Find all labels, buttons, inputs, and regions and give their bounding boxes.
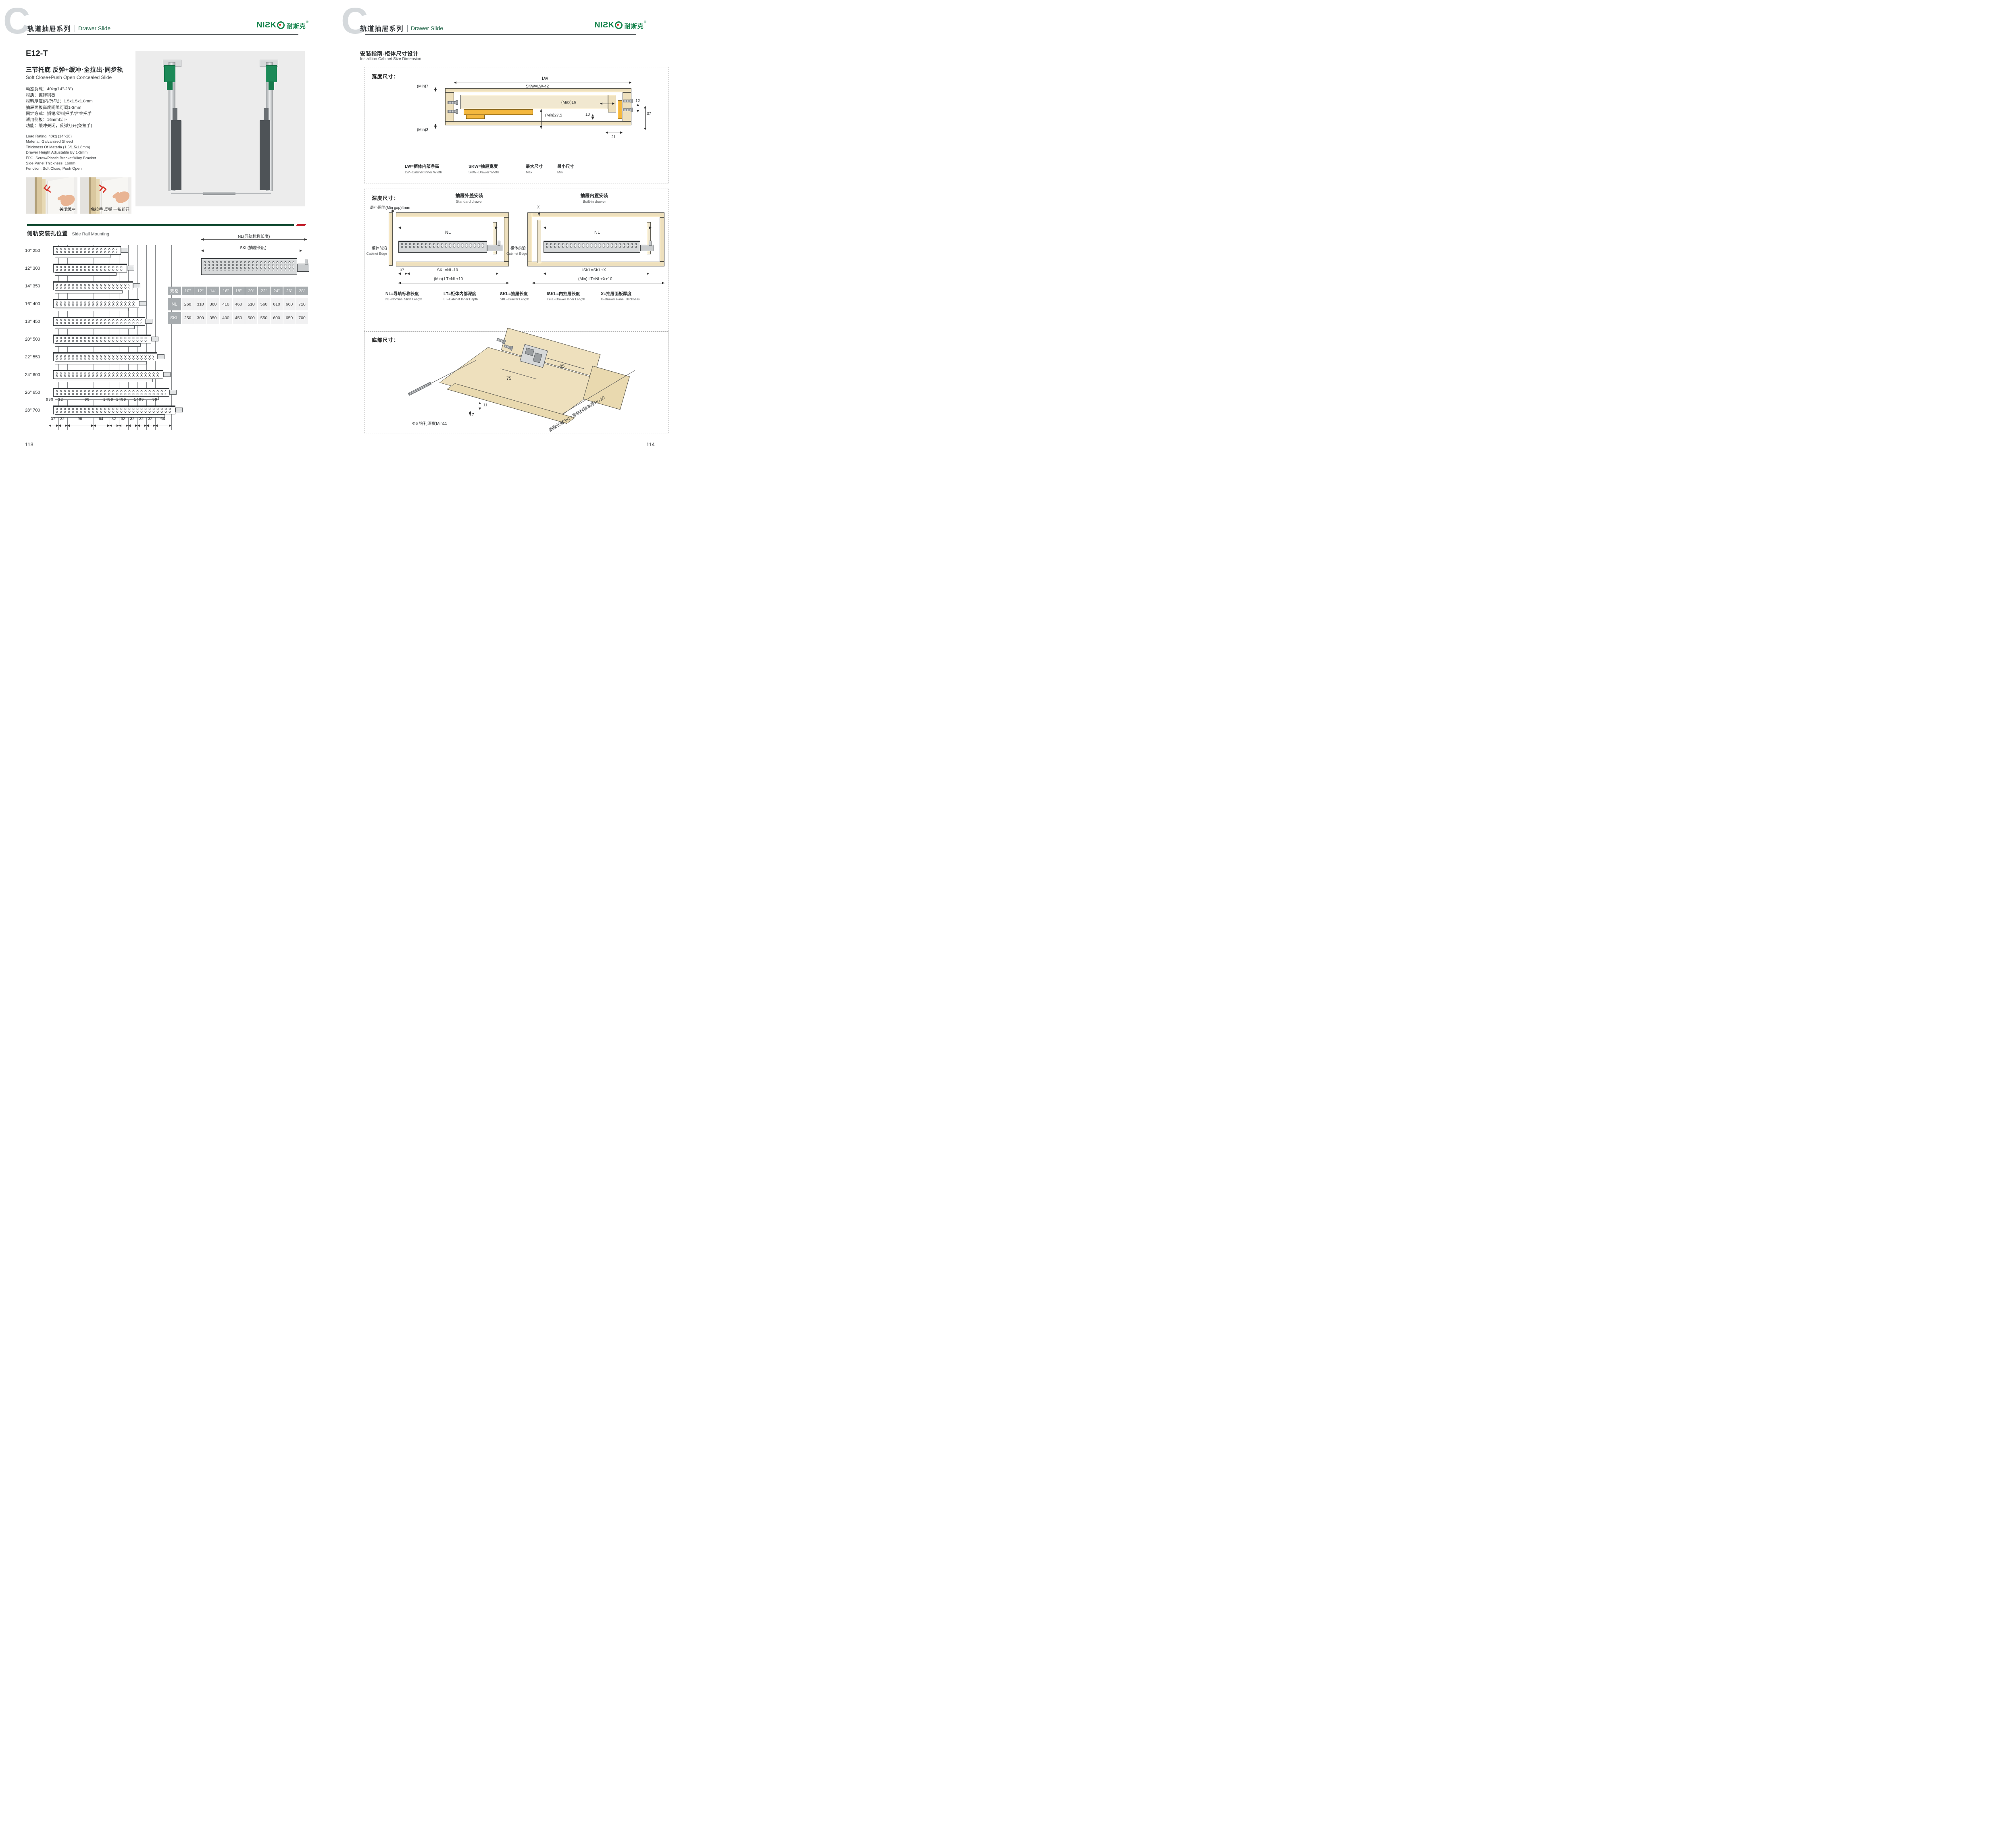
drawer-bottom-panel (460, 95, 608, 109)
max16-arrow (600, 104, 614, 104)
table-header-cell: 24" (271, 287, 283, 295)
table-value-cell: 400 (220, 312, 232, 324)
rail (53, 299, 139, 308)
latch-detail (525, 347, 535, 356)
product-photo (135, 51, 305, 206)
bottom-dim-arrow (128, 426, 137, 426)
d7-label: 7 (472, 412, 474, 417)
builtin-drawer-title: 抽屉内置安装 Built-in drawer (558, 192, 631, 204)
rail (53, 388, 169, 397)
rail-row-label: 10" 250 (25, 248, 40, 253)
section-letter-watermark: C (341, 2, 368, 40)
legend-cn: LT=柜体内部深度 (444, 291, 478, 297)
rail (53, 406, 175, 414)
table-row: NL260310360410460510560610660710 (168, 298, 309, 310)
sync-rod-coupler (203, 192, 235, 195)
table-value-cell: 460 (233, 298, 245, 310)
page-number-right: 114 (646, 441, 655, 447)
table-value-cell: 300 (194, 312, 206, 324)
d37-arrow (645, 106, 646, 130)
x-label: X (537, 205, 540, 210)
min3-arrow (435, 124, 436, 129)
series-title-cn: 轨道抽屉系列 (27, 23, 71, 33)
slide-assembly-right (255, 60, 281, 193)
slide-assembly-left (160, 60, 186, 193)
rail-lower-profile (55, 255, 110, 258)
spec-line-cn: 功能：缓冲关闭，反弹打开(免拉手) (26, 123, 93, 129)
header-rule (27, 34, 298, 35)
table-value-cell: 700 (296, 312, 308, 324)
side-bracket (618, 100, 622, 119)
rail-row-label: 14" 350 (25, 284, 40, 289)
legend-max: 最大尺寸 Max (526, 163, 543, 174)
photo-push-open: 免拉手 反弹 一按即开 (80, 177, 131, 214)
bottom-dim-arrow (146, 426, 155, 426)
bottom-box-label: 底部尺寸： (372, 336, 399, 343)
cabinet-top-board (396, 212, 509, 217)
latch-detail (533, 353, 542, 363)
bottom-dim-arrow (67, 426, 94, 426)
top-dim-label: 999 (46, 397, 54, 402)
nl-arrow (544, 228, 652, 228)
rail-holes (55, 248, 117, 254)
min-gap-arrow (393, 209, 393, 213)
spec-line-cn: 适用侧板：16mm以下 (26, 117, 93, 123)
iskl-label: ISKL=SKL+X (582, 268, 606, 272)
cabinet-left-wall (445, 92, 454, 121)
brand-logo-cn: 耐斯克 (287, 22, 306, 30)
bottom-dim-label: 32 (130, 417, 135, 421)
cabinet-edge-en: Cabinet Edge (506, 251, 526, 256)
rail (53, 246, 121, 255)
rail-lower-profile (55, 343, 141, 347)
slide-side-view (201, 258, 297, 275)
spec-line-cn: 材质：镀锌钢板 (26, 92, 93, 98)
screw-icon (623, 108, 631, 111)
spec-line-cn: 固定方式：插销/塑料把手/合金把手 (26, 111, 93, 117)
slide-hook (305, 260, 308, 264)
iso-drawing: 75 85 11 7 Φ6 钻孔深度Min11 抽屉长度SKL=导轨标称长度NL… (401, 335, 651, 432)
lt-label: (Min) LT=NL+X+10 (578, 277, 612, 281)
rail-row-label: 24" 600 (25, 372, 40, 377)
bottom-dim-label: 32 (121, 417, 125, 421)
brand-logo-cn: 耐斯克 (625, 22, 644, 30)
skl-label: SKL=NL-10 (437, 268, 458, 272)
nl-label: NL (594, 230, 600, 235)
table-header-cell: 20" (245, 287, 257, 295)
bottom-dim-arrow (119, 426, 128, 426)
spec-line-en: Side Panel Thickness: 16mm (26, 161, 96, 166)
d37-label: 37 (400, 268, 404, 272)
min-gap-label: 最小间隙(Min gap)4mm (370, 204, 410, 210)
legend-cn: SKL=抽屉长度 (500, 291, 529, 297)
cabinet-edge-cn: 柜体前沿 (365, 246, 387, 251)
slide-side-view (544, 241, 640, 253)
table-row: SKL250300350400450500550600650700 (168, 312, 309, 324)
slide-extension (640, 245, 654, 251)
rail-holes (545, 243, 637, 248)
drill-label: Φ6 钻孔深度Min11 (412, 420, 447, 426)
slide-side-view (398, 241, 487, 253)
sub-title-en: Built-in drawer (558, 200, 631, 204)
table-value-cell: 260 (182, 298, 194, 310)
slide-hook (649, 241, 652, 245)
screw-icon (448, 101, 456, 104)
cabinet-edge-en: Cabinet Edge (365, 251, 387, 256)
legend-x: X=抽屉面板厚度 X=Drawer Panel Thickness (601, 291, 640, 301)
rail (53, 352, 157, 361)
max16-label: (Max)16 (561, 100, 576, 105)
rail-extension (127, 266, 134, 270)
top-dim-label: 1499 (116, 397, 126, 402)
sub-title-en: Standard drawer (433, 200, 506, 204)
section-bar-green (27, 224, 294, 226)
cabinet-wall (80, 177, 89, 214)
product-model: E12-T (26, 49, 48, 58)
legend-cn: 最大尺寸 (526, 163, 543, 169)
cabinet-top-board (527, 212, 664, 217)
side-rail-title-en: Side Rail Mounting (72, 232, 109, 237)
rail (53, 281, 133, 290)
rail-row-label: 20" 500 (25, 337, 40, 342)
registered-mark: ® (644, 20, 646, 24)
depth-box-label: 深度尺寸： (372, 194, 399, 202)
legend-en: ISKL=Drawer Inner Length (547, 297, 585, 301)
green-clip (164, 65, 175, 82)
bottom-dim-arrow (94, 426, 110, 426)
table-value-cell: 510 (245, 298, 257, 310)
iskl-arrow (544, 274, 649, 274)
skl-arrow (407, 274, 498, 274)
bottom-dim-arrow (155, 426, 171, 426)
cabinet-edge-cn: 柜体前沿 (506, 246, 526, 251)
section-bar-red (296, 224, 306, 226)
table-header-cell: 18" (233, 287, 245, 295)
table-value-cell: 350 (207, 312, 219, 324)
cabinet-edge-leader (367, 261, 388, 261)
page-number-left: 113 (25, 441, 33, 447)
cabinet-right-wall (623, 92, 631, 121)
skl-dim-arrow (201, 251, 302, 251)
lt-arrow (398, 283, 509, 283)
top-dim-label: 1499 (103, 397, 113, 402)
rail-holes (55, 301, 135, 307)
lt-arrow (532, 283, 664, 283)
cabinet-edge-label: 柜体前沿 Cabinet Edge (506, 246, 526, 256)
table-value-cell: 600 (271, 312, 283, 324)
nl-dim-arrow (201, 239, 307, 240)
rail-lower-profile (55, 361, 147, 364)
table-header-cell: 22" (258, 287, 270, 295)
d11-label: 11 (483, 403, 487, 408)
legend-skw: SKW=抽屉宽度 SKW=Drawer Width (469, 163, 499, 174)
d37-label: 37 (647, 112, 651, 116)
rail-extension (139, 301, 146, 306)
table-value-cell: 660 (283, 298, 296, 310)
right-page: C 轨道抽屉系列 Drawer Slide NIƧK 耐斯克 ® 安装指南-柜体… (338, 0, 676, 462)
install-guide-title-cn: 安装指南-柜体尺寸设计 (360, 49, 419, 57)
table-value-cell: 710 (296, 298, 308, 310)
rail-lower-profile (55, 290, 123, 293)
bottom-dim-arrow (137, 426, 146, 426)
table-value-cell: 450 (233, 312, 245, 324)
rail (53, 317, 145, 326)
d85-label: 85 (560, 364, 564, 369)
lt-label: (Min) LT=NL+10 (434, 277, 463, 281)
bottom-dim-arrow (110, 426, 119, 426)
legend-cn: ISKL=内抽屉长度 (547, 291, 585, 297)
rail-extension (175, 408, 183, 412)
photo-caption: 免拉手 反弹 一按即开 (91, 206, 129, 212)
brand-logo: NIƧK 耐斯克 ® (256, 21, 308, 30)
legend-en: Min (557, 170, 574, 174)
rail (53, 370, 163, 379)
table-value-cell: 360 (207, 298, 219, 310)
d12-arrow (638, 104, 638, 112)
rail-holes (55, 283, 129, 289)
d21-label: 21 (611, 135, 616, 139)
cabinet-edge-leader (508, 261, 527, 261)
guide-line (171, 245, 172, 430)
rail-extension (151, 337, 158, 341)
d75-label: 75 (506, 376, 511, 381)
legend-en: LT=Cabinet Inner Depth (444, 297, 478, 301)
rail-extension (121, 248, 128, 253)
rail-row-label: 12" 300 (25, 266, 40, 271)
screw-icon (448, 110, 456, 113)
bottom-dim-label: 32 (60, 417, 65, 421)
legend-en: X=Drawer Panel Thickness (601, 297, 640, 301)
table-header-cell: 12" (194, 287, 206, 295)
series-title-en: Drawer Slide (411, 25, 443, 31)
screw-icon (496, 338, 504, 343)
green-clip (266, 65, 277, 82)
green-clip (269, 81, 274, 90)
guide-line (49, 245, 49, 430)
depth-dimension-box: 深度尺寸： 抽屉外盖安装 Standard drawer 最小间隙(Min ga… (364, 189, 669, 331)
rail-row-label: 16" 400 (25, 302, 40, 306)
side-rail-title: 侧轨安装孔位置 Side Rail Mounting (27, 229, 109, 237)
photo-soft-close: 关闭缓冲 (26, 177, 77, 214)
bottom-dim-label: 37 (51, 417, 55, 421)
rail-holes (400, 243, 483, 248)
rail-row-label: 26" 650 (25, 390, 40, 395)
page-header: 轨道抽屉系列 Drawer Slide (360, 23, 443, 33)
rail-holes (55, 337, 148, 342)
legend-skl: SKL=抽屉长度 SKL=Drawer Length (500, 291, 529, 301)
legend-lw: LW=柜体内部净高 LW=Cabinet Inner Width (405, 163, 442, 174)
rail-lower-profile (55, 379, 153, 382)
spec-line-en: Function: Soft Close, Push Open (26, 166, 96, 171)
cabinet-back-wall (660, 217, 664, 262)
table-header-row: 规格10"12"14"16"18"20"22"24"26"28" (168, 287, 309, 295)
min27-label: (Min)27.5 (545, 113, 562, 118)
table-row-label: NL (168, 298, 181, 310)
rail-row-label: 28" 700 (25, 408, 40, 413)
plastic-housing (260, 120, 270, 190)
spec-line-en: Thickness Of Materia (1.5/1.5/1.8mm) (26, 145, 96, 150)
rail-extension (145, 319, 152, 324)
nl-arrow (398, 228, 498, 228)
cabinet-front-edge (389, 212, 393, 266)
registered-mark: ® (306, 20, 308, 24)
lw-label: LW (542, 76, 548, 81)
header-rule (365, 34, 636, 35)
table-value-cell: 650 (283, 312, 296, 324)
top-dim-label: 1499 (134, 397, 144, 402)
legend-cn: LW=柜体内部净高 (405, 163, 442, 169)
rail-extension (157, 354, 165, 359)
bottom-dim-label: 96 (78, 417, 82, 421)
table-header-cell: 14" (207, 287, 219, 295)
rail-holes (203, 261, 294, 270)
rail-row-label: 22" 550 (25, 355, 40, 360)
table-value-cell: 550 (258, 312, 270, 324)
legend-iskl: ISKL=内抽屉长度 ISKL=Drawer Inner Length (547, 291, 585, 301)
bottom-dim-label: 32 (148, 417, 152, 421)
bottom-dim-label: 64 (160, 417, 165, 421)
bottom-dim-arrow (49, 426, 58, 426)
legend-cn: NL=导轨标称长度 (385, 291, 422, 297)
slide-extension (487, 245, 503, 251)
nl-dim-label: NL(导轨标称长度) (238, 233, 270, 239)
brand-logo-o-icon (277, 21, 285, 29)
min7-arrow (435, 87, 436, 92)
d11-arrow (480, 402, 480, 410)
spec-line-en: Drawer Height Adjustable By 1-3mm (26, 150, 96, 155)
cabinet-bottom-board (527, 262, 664, 266)
table-value-cell: 410 (220, 298, 232, 310)
install-guide-title-en: Installtion Cabinet Size Dimension (360, 57, 421, 61)
page-header: 轨道抽屉系列 Drawer Slide (27, 23, 110, 33)
bottom-dim-label: 32 (139, 417, 144, 421)
rail (53, 335, 151, 343)
photo-caption: 关闭缓冲 (59, 206, 75, 212)
skl-dim-label: SKL(抽屉长度) (240, 244, 267, 250)
size-table: 规格10"12"14"16"18"20"22"24"26"28"NL260310… (168, 287, 309, 326)
rail-holes (55, 390, 166, 395)
table-header-cell: 10" (182, 287, 194, 295)
drawer-side-wood (37, 177, 42, 214)
d7-arrow (470, 411, 471, 416)
min7-label: (Min)7 (417, 84, 428, 89)
cabinet-bottom-board (396, 262, 509, 266)
top-dim-label: 99 (85, 397, 90, 402)
rail-lower-profile (55, 326, 135, 329)
bottom-dim-label: 32 (112, 417, 116, 421)
plastic-housing (171, 120, 181, 190)
green-clip (167, 81, 173, 90)
rail-extension (133, 283, 140, 288)
rail-holes (55, 408, 172, 413)
table-value-cell: 250 (182, 312, 194, 324)
legend-en: NL=Nominal Slide Length (385, 297, 422, 301)
spec-line-cn: 动态负载：40kg(14"-28") (26, 86, 93, 92)
min27-arrow (541, 109, 541, 129)
rail-holes (55, 372, 160, 378)
legend-lt: LT=柜体内部深度 LT=Cabinet Inner Depth (444, 291, 478, 301)
table-header-cell: 26" (283, 287, 296, 295)
legend-cn: SKW=抽屉宽度 (469, 163, 499, 169)
rail-lower-profile (55, 272, 117, 276)
spec-line-cn: 抽屉面板高度间隙可调1-3mm (26, 105, 93, 111)
product-title-en: Soft Close+Push Open Concealed Slide (26, 75, 112, 80)
rail-holes (55, 319, 142, 324)
brand-logo-text: NIƧK (256, 21, 277, 29)
cabinet-bottom-board (445, 121, 631, 125)
rail-holes (55, 266, 123, 271)
side-rail-title-cn: 侧轨安装孔位置 (27, 229, 68, 237)
brand-logo-text: NIƧK (594, 21, 614, 29)
legend-en: SKL=Drawer Length (500, 297, 529, 301)
nl-label: NL (445, 230, 451, 235)
cabinet-top-board (445, 88, 631, 92)
cabinet-wall (26, 177, 35, 214)
series-title-en: Drawer Slide (78, 25, 110, 31)
bottom-dimension-box: 底部尺寸： 75 85 11 7 (364, 331, 669, 433)
spec-line-cn: 材料厚度(内/外轨)：1.5x1.5x1.8mm (26, 98, 93, 104)
table-header-cell: 规格 (168, 287, 181, 295)
left-page: C 轨道抽屉系列 Drawer Slide NIƧK 耐斯克 ® E12-T 三… (0, 0, 338, 462)
slide-extension (297, 264, 309, 272)
table-header-cell: 16" (220, 287, 232, 295)
product-title-cn: 三节托底 反弹+缓冲·全拉出·同步轨 (26, 65, 123, 74)
table-header-cell: 28" (296, 287, 308, 295)
drawer-front-panel (537, 220, 541, 263)
table-value-cell: 610 (271, 298, 283, 310)
rail-lower-profile (55, 308, 129, 311)
cabinet-edge-label: 柜体前沿 Cabinet Edge (365, 246, 387, 256)
top-dim-label: 99 (152, 397, 158, 402)
legend-nl: NL=导轨标称长度 NL=Nominal Slide Length (385, 291, 422, 301)
rail-holes (55, 354, 154, 360)
top-dim-label: 32 (58, 397, 63, 402)
standard-drawer-title: 抽屉外盖安装 Standard drawer (433, 192, 506, 204)
sub-title-cn: 抽屉内置安装 (558, 192, 631, 199)
legend-en: SKW=Drawer Width (469, 170, 499, 174)
catalog-spread: C 轨道抽屉系列 Drawer Slide NIƧK 耐斯克 ® E12-T 三… (0, 0, 676, 462)
header-divider (407, 25, 408, 32)
d12-label: 12 (635, 99, 640, 103)
cabinet-front-wall (527, 212, 532, 266)
spec-line-en: FIX：Screw/Plastic Bracket/Alloy Bracket (26, 156, 96, 161)
width-dimension-box: 宽度尺寸： LW SKW=LW-42 (Min)7 (Max)16 12 (364, 67, 669, 183)
d37-arrow (398, 274, 407, 274)
spec-line-en: Load Rating: 40kg (14"-28) (26, 134, 96, 139)
lw-arrow (454, 83, 631, 83)
slide-profile (464, 109, 533, 115)
slide-hook (498, 241, 500, 245)
rail-extension (169, 390, 177, 395)
slide-bracket (466, 115, 485, 119)
table-value-cell: 310 (194, 298, 206, 310)
bottom-dim-label: 64 (99, 417, 103, 421)
header-divider (75, 25, 75, 32)
rail-row-label: 18" 450 (25, 319, 40, 324)
section-letter-watermark: C (3, 2, 30, 40)
sub-title-cn: 抽屉外盖安装 (433, 192, 506, 199)
d10-arrow (593, 114, 593, 120)
drill-bit-icon (408, 382, 431, 395)
x-arrow (539, 212, 539, 216)
spec-line-en: Material: Galvanized Sheed (26, 139, 96, 144)
specs-en: Load Rating: 40kg (14"-28)Material: Galv… (26, 134, 96, 172)
legend-cn: X=抽屉面板厚度 (601, 291, 640, 297)
rail-extension (163, 372, 171, 377)
nl-skl-diagram: NL(导轨标称长度) SKL(抽屉长度) (200, 233, 314, 286)
bottom-dim-arrow (58, 426, 67, 426)
table-value-cell: 500 (245, 312, 257, 324)
